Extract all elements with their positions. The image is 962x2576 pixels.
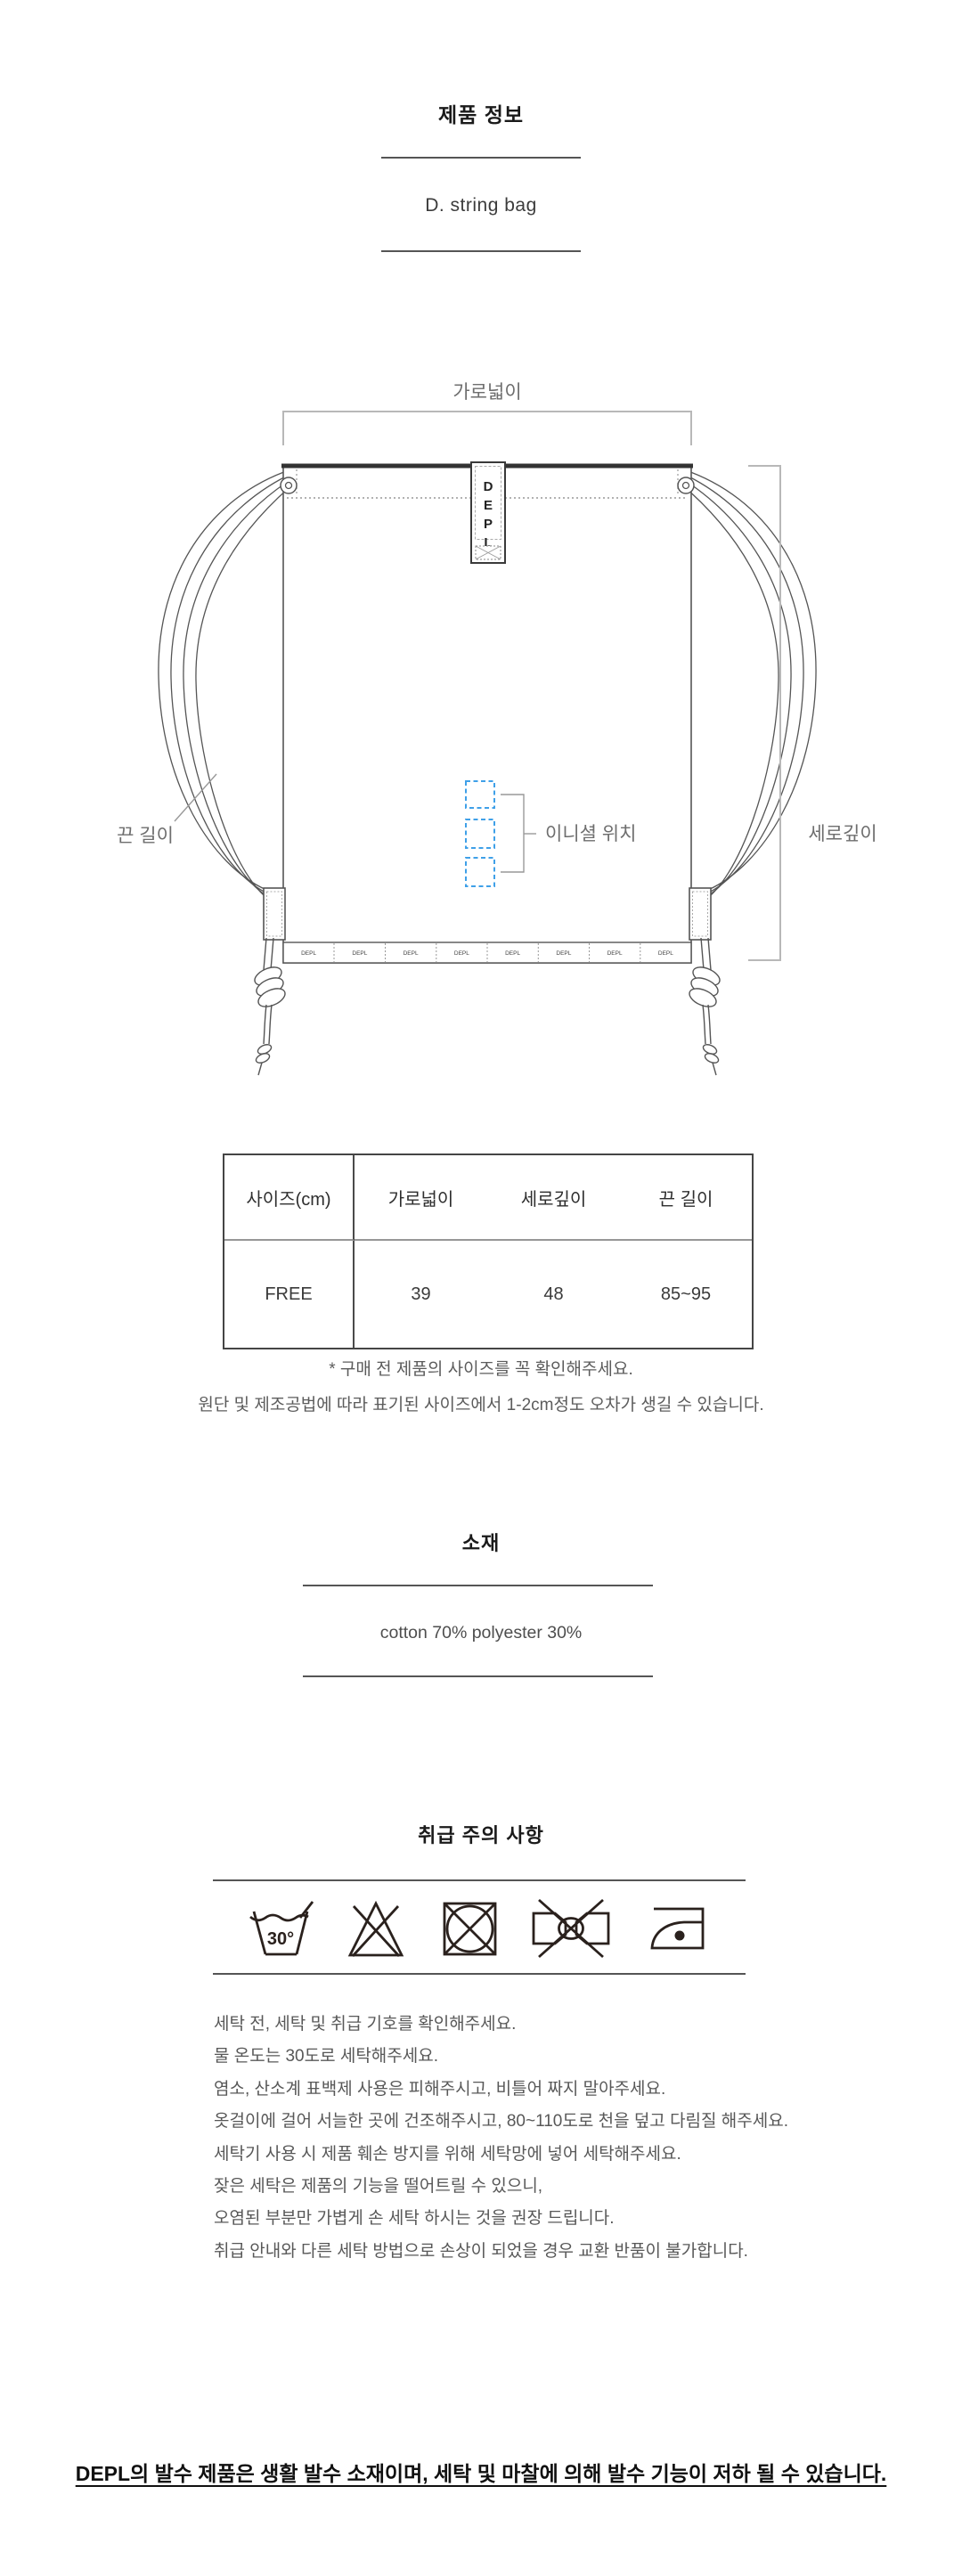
material-title: 소재 [0,1528,962,1556]
svg-text:DEPL: DEPL [658,950,673,957]
size-table-header-strap: 끈 길이 [620,1155,752,1241]
wash-temp-label: 30° [267,1929,294,1949]
divider [213,1973,746,1975]
page-title: 제품 정보 [0,98,962,128]
size-table: 사이즈(cm) 가로넓이 세로깊이 끈 길이 FREE 39 48 85~95 [223,1153,754,1349]
size-value-depth: 48 [487,1241,620,1348]
divider [381,250,581,252]
divider [303,1675,653,1677]
width-bracket [283,412,691,445]
right-strap [673,469,816,903]
care-line: 취급 안내와 다른 세탁 방법으로 손상이 되었을 경우 교환 반품이 불가합니… [214,2236,926,2268]
do-not-tumble-dry-icon [444,1903,495,1954]
right-strap-knot [687,938,722,1075]
size-table-header-width: 가로넓이 [355,1155,487,1241]
do-not-wring-icon [534,1900,608,1957]
product-info-page: 제품 정보 D. string bag 가로넓이 [0,0,962,2576]
material-content: cotton 70% polyester 30% [0,1623,962,1643]
care-title: 취급 주의 사항 [0,1820,962,1848]
footer-warning-text: DEPL의 발수 제품은 생활 발수 소재이며, 세탁 및 마찰에 의해 발수 … [76,2462,887,2485]
size-note-line2: 원단 및 제조공법에 따라 표기된 사이즈에서 1-2cm정도 오차가 생길 수… [0,1388,962,1423]
left-strap-knot [252,938,288,1075]
depth-label: 세로깊이 [808,824,876,844]
brand-tag: D E P L [471,462,505,563]
divider [213,1879,746,1881]
care-line: 옷걸이에 걸어 서늘한 곳에 건조해주시고, 80~110도로 천을 덮고 다림… [214,2106,926,2138]
care-line: 세탁 전, 세탁 및 취급 기호를 확인해주세요. [214,2009,926,2041]
footer-warning: DEPL의 발수 제품은 생활 발수 소재이며, 세탁 및 마찰에 의해 발수 … [0,2457,962,2487]
divider [381,157,581,159]
product-name: D. string bag [0,195,962,216]
care-line: 염소, 산소계 표백제 사용은 피해주시고, 비틀어 짜지 말아주세요. [214,2074,926,2106]
care-line: 잦은 세탁은 제품의 기능을 떨어트릴 수 있으니, [214,2171,926,2203]
care-line: 세탁기 사용 시 제품 훼손 방지를 위해 세탁망에 넣어 세탁해주세요. [214,2139,926,2171]
tag-letter: D [484,479,493,494]
svg-text:DEPL: DEPL [404,950,419,957]
size-value-free: FREE [224,1241,355,1348]
size-value-width: 39 [355,1241,487,1348]
wash-30-icon: 30° [250,1902,313,1954]
care-line: 물 온도는 30도로 세탁해주세요. [214,2041,926,2073]
initial-position-label: 이니셜 위치 [545,824,636,844]
tag-letter: P [484,517,493,532]
divider [303,1585,653,1586]
left-strap [159,469,301,903]
svg-text:DEPL: DEPL [454,950,469,957]
bag-diagram: 가로넓이 [0,356,962,1122]
iron-icon [652,1909,703,1948]
bottom-logo-strip: DEPL DEPL DEPL DEPL DEPL DEPL DEPL DEPL [283,942,691,963]
svg-text:DEPL: DEPL [607,950,623,957]
size-table-header-size: 사이즈(cm) [224,1155,355,1241]
width-measure-label: 가로넓이 [452,382,521,403]
care-symbols: 30° [214,1894,748,1963]
strap-length-label: 끈 길이 [117,826,174,846]
svg-text:DEPL: DEPL [505,950,520,957]
do-not-bleach-icon [350,1903,402,1956]
tag-letter: E [484,498,493,513]
size-value-strap: 85~95 [620,1241,752,1348]
size-note: * 구매 전 제품의 사이즈를 꼭 확인해주세요. 원단 및 제조공법에 따라 … [0,1352,962,1423]
depth-bracket [748,466,780,960]
size-table-header-depth: 세로깊이 [487,1155,620,1241]
care-instructions: 세탁 전, 세탁 및 취급 기호를 확인해주세요. 물 온도는 30도로 세탁해… [214,2009,926,2268]
size-note-line1: * 구매 전 제품의 사이즈를 꼭 확인해주세요. [0,1352,962,1388]
svg-text:DEPL: DEPL [301,950,316,957]
care-line: 오염된 부분만 가볍게 손 세탁 하시는 것을 권장 드립니다. [214,2203,926,2235]
svg-text:DEPL: DEPL [556,950,571,957]
svg-text:DEPL: DEPL [352,950,367,957]
